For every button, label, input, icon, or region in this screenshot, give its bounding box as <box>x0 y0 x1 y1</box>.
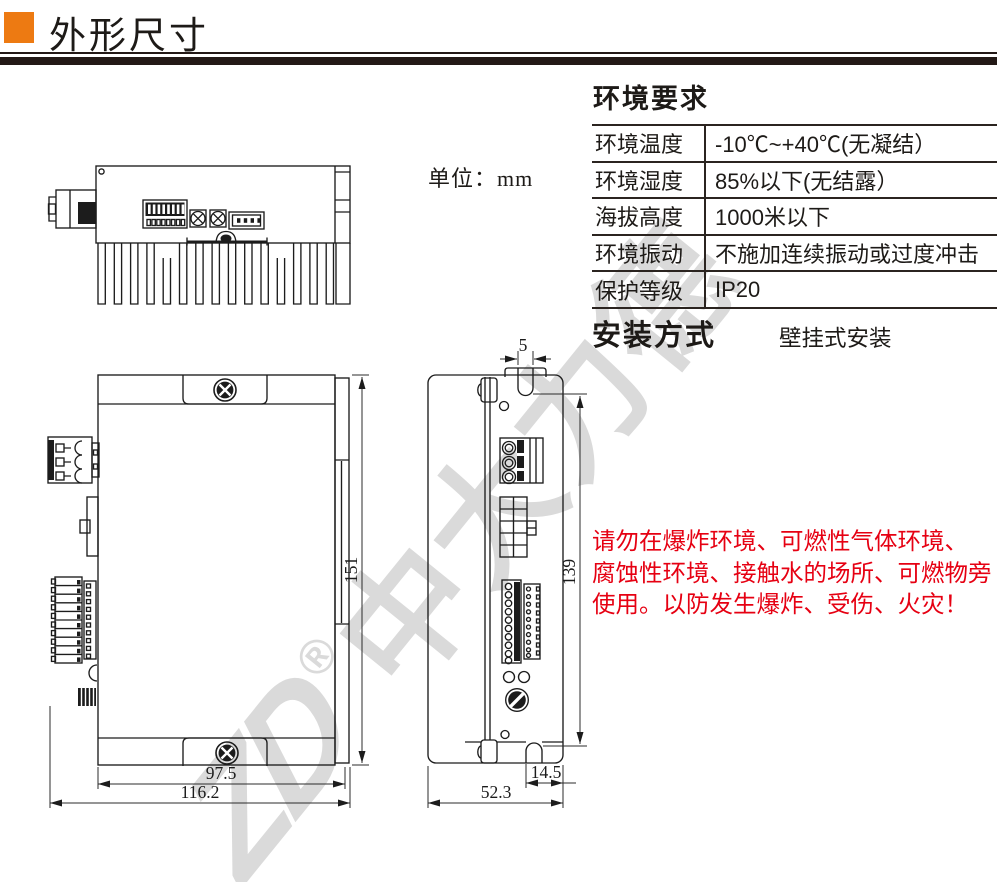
header-rule-thick <box>0 57 997 65</box>
row-value: IP20 <box>706 277 997 303</box>
header-rule-thin <box>0 52 997 54</box>
install-method-value: 壁挂式安装 <box>779 321 892 353</box>
row-value: 不施加连续振动或过度冲击 <box>706 237 997 269</box>
warning-line: 使用。以防发生爆炸、受伤、火灾！ <box>592 589 997 621</box>
dim-label-top-slot: 5 <box>519 335 528 355</box>
table-row: 环境振动 不施加连续振动或过度冲击 <box>592 236 997 273</box>
row-label: 保护等级 <box>592 272 706 307</box>
row-label: 环境振动 <box>592 236 706 271</box>
top-view-drawing <box>49 166 351 304</box>
dim-label-bottom-notch: 14.5 <box>531 762 562 782</box>
dim-label-front-height: 151 <box>341 557 361 583</box>
env-requirements-title: 环境要求 <box>593 77 709 116</box>
table-row: 保护等级 IP20 <box>592 272 997 309</box>
row-value: 1000米以下 <box>706 200 997 232</box>
row-label: 环境湿度 <box>592 163 706 198</box>
front-view-drawing <box>48 375 349 766</box>
dim-label-front-width-total: 116.2 <box>181 782 220 802</box>
row-value: 85%以下(无结露） <box>706 164 997 196</box>
env-requirements-table: 环境温度 -10℃~+40℃(无凝结） 环境湿度 85%以下(无结露） 海拔高度… <box>592 124 997 309</box>
section-bullet-square <box>4 12 34 43</box>
row-label: 环境温度 <box>592 126 706 161</box>
warning-line: 请勿在爆炸环境、可燃性气体环境、 <box>592 526 997 558</box>
catalog-page: ZD ® 中大力德 外形尺寸 单位：mm 环境要求 环境温度 -10℃~+40℃… <box>0 0 997 882</box>
dim-label-side-depth: 52.3 <box>481 782 512 802</box>
row-label: 海拔高度 <box>592 199 706 234</box>
table-row: 环境温度 -10℃~+40℃(无凝结） <box>592 126 997 163</box>
row-value: -10℃~+40℃(无凝结） <box>706 127 997 159</box>
warning-line: 腐蚀性环境、接触水的场所、可燃物旁 <box>592 558 997 590</box>
install-method-title: 安装方式 <box>592 312 716 354</box>
page-title: 外形尺寸 <box>49 5 209 59</box>
table-row: 环境湿度 85%以下(无结露） <box>592 163 997 200</box>
table-row: 海拔高度 1000米以下 <box>592 199 997 236</box>
side-view-drawing <box>428 368 563 763</box>
dimension-annotations: 151 97.5 116.2 5 139 14.5 <box>50 335 587 808</box>
unit-label: 单位：mm <box>428 161 533 193</box>
dim-label-side-height: 139 <box>559 559 579 586</box>
safety-warning: 请勿在爆炸环境、可燃性气体环境、 腐蚀性环境、接触水的场所、可燃物旁 使用。以防… <box>592 526 997 621</box>
dim-label-front-width-inner: 97.5 <box>206 763 237 783</box>
